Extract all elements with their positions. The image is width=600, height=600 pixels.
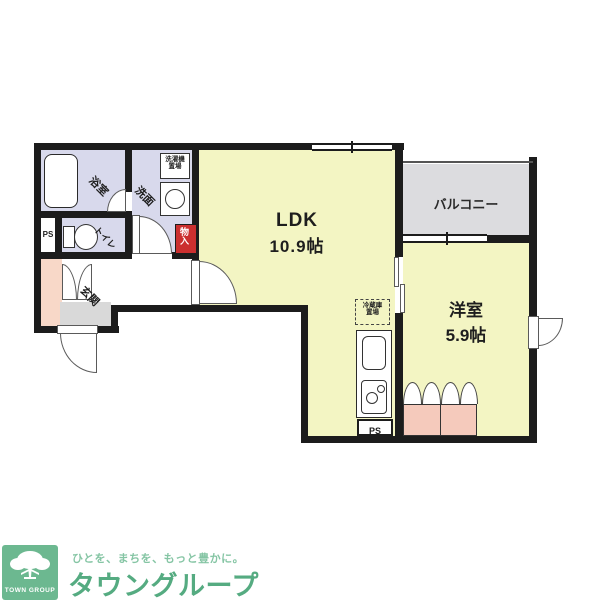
bathtub [44, 154, 78, 208]
washbasin-bowl [165, 189, 185, 209]
entrance-step-gray [60, 302, 111, 326]
wall-segment [111, 305, 118, 333]
wall-segment [34, 143, 312, 150]
tree-icon [8, 549, 52, 583]
logo-block: TOWN GROUP ひとを、まちを、もっと豊かに。 タウングループ [0, 540, 600, 600]
sliding-door-panel [394, 257, 399, 287]
logo-square: TOWN GROUP [2, 545, 58, 600]
wall-segment [125, 211, 132, 259]
storage-box: 物入 [175, 224, 197, 254]
ldk-label: LDK 10.9帖 [199, 210, 395, 258]
wall-segment [34, 252, 132, 259]
window-balcony [403, 234, 487, 243]
wall-segment [34, 211, 132, 218]
stove-burner [366, 392, 378, 404]
logo-text: TOWN GROUP [2, 587, 58, 594]
floorplan-canvas: 洗濯機置場 物入 冷蔵庫置場 PS LDK 10.9帖 洋室 5.9帖 バルコニ… [0, 0, 600, 600]
wall-segment [529, 157, 537, 243]
western-room-label: 洋室 5.9帖 [403, 296, 529, 346]
ps-kitchen-label: PS [369, 426, 381, 436]
door-arc-entrance [60, 333, 97, 373]
kitchen-sink [362, 336, 386, 370]
wall-segment [301, 436, 537, 443]
wall-segment [487, 235, 537, 243]
wall-segment [301, 312, 308, 443]
wall-segment [125, 150, 132, 192]
storage-label: 物入 [179, 227, 188, 245]
stove-burner [377, 385, 385, 393]
western-room-size: 5.9帖 [446, 326, 487, 345]
wall-segment [111, 305, 308, 312]
wall-segment [395, 313, 403, 443]
ldk-size: 10.9帖 [269, 237, 324, 256]
window-tick [351, 141, 353, 153]
wall-segment [529, 243, 537, 318]
closet [403, 404, 477, 436]
window-tick [446, 232, 448, 245]
wall-segment [529, 348, 537, 443]
closet-door-arc [62, 264, 77, 300]
ps-left-label: PS [40, 230, 56, 239]
closet-divider [440, 405, 441, 435]
door-arc-western [538, 318, 563, 346]
ps-kitchen-box: PS [357, 419, 393, 436]
fridge-place-label: 冷蔵庫置場 [355, 302, 390, 317]
room-entrance-pink [41, 259, 62, 326]
wall-segment [395, 143, 403, 257]
washer-place-label: 洗濯機置場 [160, 156, 190, 171]
balcony-label: バルコニー [403, 194, 529, 213]
brand-company: タウングループ [68, 564, 259, 600]
balcony-edge-line [403, 161, 533, 163]
